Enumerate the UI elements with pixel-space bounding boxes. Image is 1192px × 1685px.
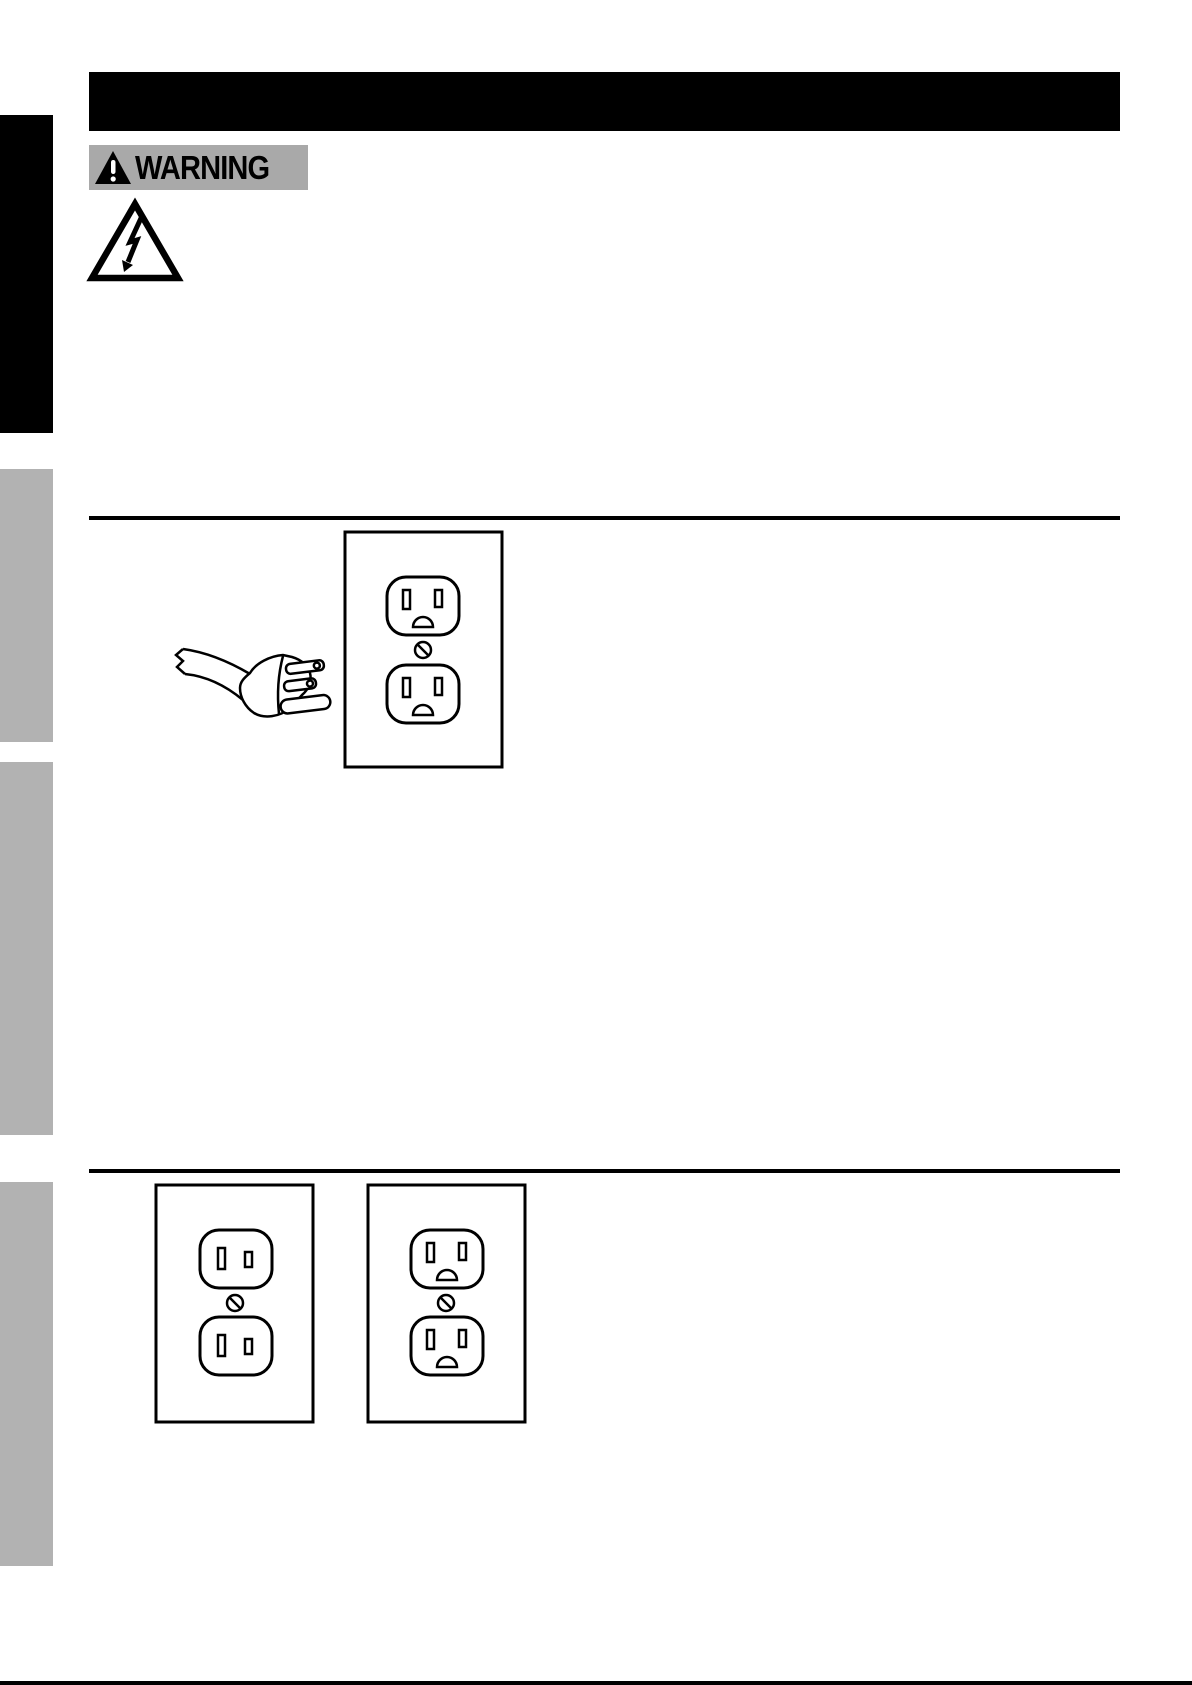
grounded-plug-and-outlet-illustration [150,525,510,775]
sidebar-tab-1 [0,115,53,433]
electrical-hazard-icon [86,196,184,288]
manual-page: { "page": { "background": "#ffffff" }, "… [0,0,1192,1685]
section-divider [89,1169,1120,1173]
outlet-comparison-illustration [150,1180,530,1430]
warning-badge: WARNING [89,145,308,190]
three-prong-plug [176,649,331,716]
warning-badge-label: WARNING [135,151,269,184]
warning-triangle-icon [94,149,132,187]
sidebar-tab-3 [0,762,53,1135]
section-divider [89,516,1120,520]
sidebar-tab-2 [0,469,53,742]
two-prong-outlet-illustration [156,1185,313,1422]
section-header-bar [89,72,1120,131]
three-prong-outlet-illustration [368,1185,525,1422]
page-bottom-rule [0,1681,1192,1685]
outlet-cover-plate [345,532,502,767]
sidebar-tab-4 [0,1182,53,1566]
